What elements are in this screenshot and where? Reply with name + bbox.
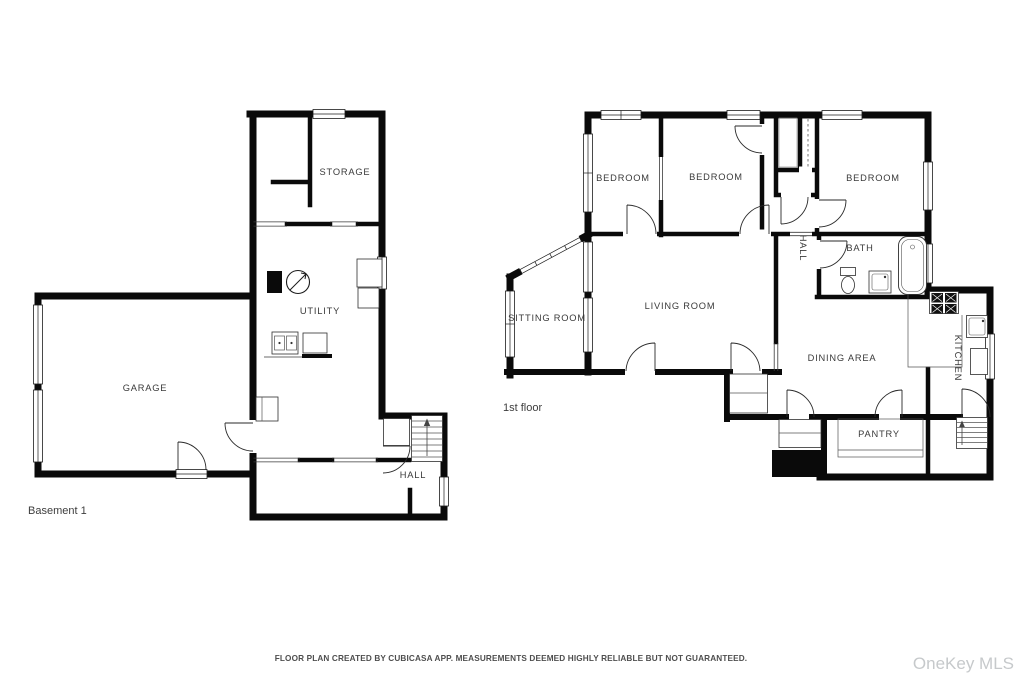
cased-opening (659, 157, 812, 371)
garage-entry-opening (176, 470, 207, 479)
window (601, 111, 641, 120)
room-label-storage: STORAGE (320, 167, 371, 177)
water-heater-icon (357, 259, 382, 287)
toilet-icon (841, 268, 856, 294)
dishwasher-icon (971, 349, 988, 375)
electrical-panel-icon (287, 271, 310, 294)
basement-exterior-walls (38, 114, 444, 517)
first-floor-interior-walls (588, 115, 930, 477)
entry-stoop (730, 374, 768, 413)
door (820, 241, 847, 268)
solid-structure-block (772, 450, 822, 477)
room-label-hall: HALL (798, 235, 808, 261)
room-label-living-room: LIVING ROOM (645, 301, 716, 311)
utility-step (256, 397, 278, 421)
utility-counter (264, 356, 332, 357)
first-floor-plan: BEDROOM BEDROOM BEDROOM HALL BATH SITTIN… (503, 111, 995, 478)
basement-floor-label: Basement 1 (28, 505, 87, 517)
door (731, 343, 760, 371)
floor-plan-canvas: STORAGE UTILITY GARAGE HALL Basement 1 (0, 0, 1024, 683)
room-label-utility: UTILITY (300, 306, 340, 316)
window (924, 162, 933, 210)
appliance-icon (358, 288, 379, 308)
window (584, 134, 593, 212)
laundry-sink-icon (272, 332, 298, 354)
bath-sink-icon (869, 271, 891, 293)
window (822, 111, 862, 120)
door (178, 442, 206, 470)
washing-machine-icon (303, 333, 327, 353)
room-label-sitting-room: SITTING ROOM (508, 313, 586, 323)
door (626, 343, 655, 371)
door (819, 200, 846, 227)
interior-window (584, 242, 593, 292)
window (313, 110, 345, 119)
room-label-basement-hall: HALL (400, 470, 426, 480)
closet-shelf (779, 118, 797, 167)
door (875, 390, 902, 417)
room-label-dining-area: DINING AREA (808, 353, 877, 363)
door (787, 390, 814, 417)
basement-stairs (384, 416, 443, 462)
interior-window (584, 298, 593, 352)
furnace-icon (267, 271, 282, 293)
window (440, 477, 449, 506)
room-label-bedroom-middle: BEDROOM (689, 172, 743, 182)
room-label-garage: GARAGE (123, 383, 168, 393)
room-label-kitchen: KITCHEN (953, 335, 963, 381)
room-label-bath: BATH (846, 243, 873, 253)
room-label-bedroom-left: BEDROOM (596, 173, 650, 183)
disclaimer-text: FLOOR PLAN CREATED BY CUBICASA APP. MEAS… (275, 654, 747, 663)
door (962, 389, 990, 417)
first-floor-label: 1st floor (503, 402, 542, 414)
window (506, 291, 515, 357)
first-floor-stairs (957, 418, 988, 449)
room-label-bedroom-right: BEDROOM (846, 173, 900, 183)
floor-plan-page: STORAGE UTILITY GARAGE HALL Basement 1 (0, 0, 1024, 683)
room-label-pantry: PANTRY (858, 429, 900, 439)
entry-stoop (779, 420, 821, 448)
kitchen-sink-icon (967, 316, 988, 338)
watermark-text: OneKey MLS (913, 654, 1014, 673)
basement-plan: STORAGE UTILITY GARAGE HALL Basement 1 (28, 110, 449, 518)
window (34, 305, 43, 384)
door (781, 197, 808, 224)
bathtub-icon (899, 237, 927, 295)
bay-window (520, 238, 582, 274)
window (34, 390, 43, 462)
stove-icon (930, 292, 959, 314)
window (727, 111, 760, 120)
